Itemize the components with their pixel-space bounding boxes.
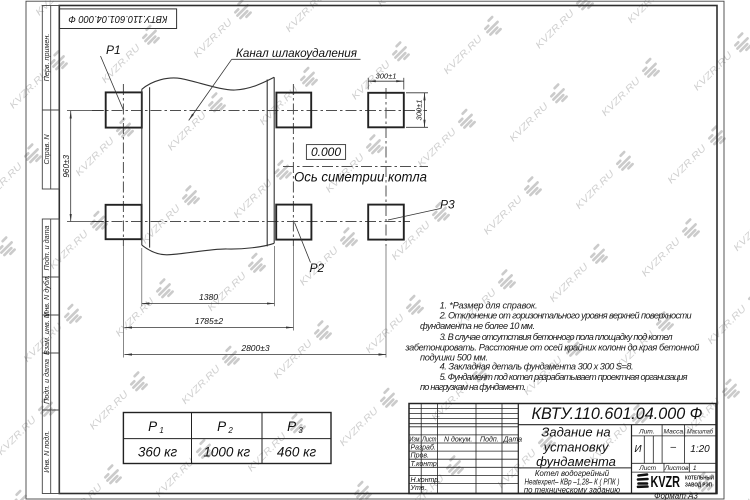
svg-text:Подп. и дата: Подп. и дата — [42, 359, 51, 404]
svg-text:Дата: Дата — [503, 437, 523, 444]
svg-text:P2: P2 — [310, 261, 325, 275]
svg-text:Канал шлакоудаления: Канал шлакоудаления — [236, 48, 357, 60]
svg-text:2. Отклонение от горизонтальн: 2. Отклонение от горизонтального уровня … — [439, 311, 692, 321]
svg-text:960±3: 960±3 — [62, 155, 71, 178]
svg-text:1:20: 1:20 — [690, 444, 710, 455]
svg-text:3. В случае отсутствия бетонн: 3. В случае отсутствия бетонного пола пл… — [440, 332, 673, 342]
svg-text:P1: P1 — [106, 43, 121, 57]
svg-text:P 1: P 1 — [148, 419, 164, 435]
svg-text:КВТУ.110.601.04.000 Ф: КВТУ.110.601.04.000 Ф — [68, 13, 167, 24]
svg-text:Т.контр.: Т.контр. — [411, 461, 439, 468]
svg-text:1380: 1380 — [199, 292, 218, 302]
svg-text:0.000: 0.000 — [311, 145, 341, 159]
svg-text:Формат А3: Формат А3 — [654, 492, 698, 500]
svg-text:460 кг: 460 кг — [277, 445, 317, 460]
svg-text:300±1: 300±1 — [375, 72, 396, 81]
svg-text:Перв. примен.: Перв. примен. — [42, 34, 51, 82]
svg-text:КВТУ.110.601.04.000 Ф: КВТУ.110.601.04.000 Ф — [532, 405, 703, 423]
svg-text:Разраб.: Разраб. — [411, 444, 436, 452]
svg-text:Лист: Лист — [638, 465, 656, 472]
svg-text:Взам. инв. N: Взам. инв. N — [42, 312, 51, 355]
svg-text:360 кг: 360 кг — [138, 445, 178, 460]
svg-text:Инв. N подл.: Инв. N подл. — [42, 431, 51, 473]
svg-text:Лит.: Лит. — [638, 428, 655, 435]
svg-text:5. Фундамент под котел разраб: 5. Фундамент под котел разрабатывает про… — [440, 372, 688, 382]
svg-text:Справ. N: Справ. N — [42, 134, 51, 165]
svg-text:КОТЕЛЬНЫЙ: КОТЕЛЬНЫЙ — [685, 474, 714, 482]
svg-text:P3: P3 — [440, 198, 455, 212]
svg-text:Лист: Лист — [421, 437, 436, 444]
svg-text:Инв. N дубл.: Инв. N дубл. — [42, 275, 51, 317]
svg-text:ЗАВОД РЭП: ЗАВОД РЭП — [685, 483, 712, 489]
svg-text:Масштаб: Масштаб — [687, 427, 713, 435]
svg-text:установку: установку — [543, 440, 610, 455]
svg-text:Листов: Листов — [664, 465, 690, 472]
svg-text:Задание на: Задание на — [541, 425, 610, 440]
svg-text:–: – — [671, 442, 677, 453]
svg-text:Подп. и дата: Подп. и дата — [42, 226, 51, 271]
svg-text:по нагрузкам на фундамент.: по нагрузкам на фундамент. — [420, 382, 526, 392]
svg-text:фундамента не более 10 мм.: фундамента не более 10 мм. — [420, 321, 535, 331]
svg-text:Ось симетрии котла: Ось симетрии котла — [294, 170, 427, 185]
svg-text:1. *Размер для справок.: 1. *Размер для справок. — [440, 301, 538, 311]
svg-text:1000 кг: 1000 кг — [203, 445, 250, 460]
svg-text:забетонировать. Расстояние от: забетонировать. Расстояние от осей крайн… — [404, 342, 699, 352]
svg-text:2800±3: 2800±3 — [240, 343, 270, 353]
svg-text:1785±2: 1785±2 — [195, 316, 224, 326]
svg-text:Н.контр.: Н.контр. — [411, 477, 441, 484]
svg-text:P 2: P 2 — [217, 419, 233, 435]
svg-text:Пров.: Пров. — [411, 453, 430, 460]
svg-text:И: И — [634, 444, 642, 455]
svg-text:фундамента: фундамента — [536, 454, 616, 469]
svg-text:по техническому заданию: по техническому заданию — [524, 485, 620, 494]
svg-text:4. Закладная деталь фундамент: 4. Закладная деталь фундамента 300 x 300… — [440, 362, 634, 372]
svg-text:Подп.: Подп. — [480, 436, 499, 444]
svg-text:KVZR: KVZR — [651, 474, 681, 491]
svg-text:Масса: Масса — [664, 428, 684, 435]
svg-text:Изм.: Изм. — [410, 437, 422, 444]
svg-text:N докум.: N докум. — [444, 436, 472, 444]
svg-text:300±1: 300±1 — [415, 99, 424, 120]
svg-text:1: 1 — [693, 465, 697, 472]
svg-text:Утв.: Утв. — [410, 485, 427, 492]
